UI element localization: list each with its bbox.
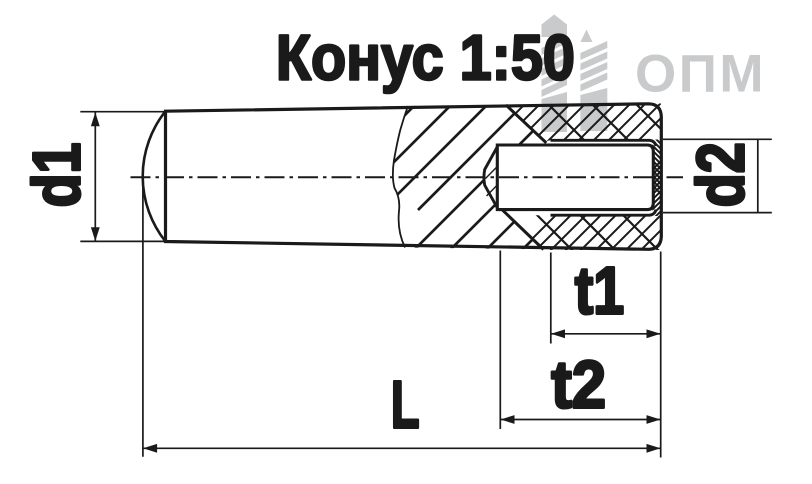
svg-text:ОПМ: ОПМ xyxy=(635,44,766,103)
svg-text:d1: d1 xyxy=(20,143,95,208)
svg-text:t1: t1 xyxy=(575,254,624,329)
svg-text:Конус 1:50: Конус 1:50 xyxy=(276,22,575,93)
svg-text:t2: t2 xyxy=(551,347,606,422)
svg-text:d2: d2 xyxy=(684,142,759,207)
svg-text:L: L xyxy=(391,368,420,442)
